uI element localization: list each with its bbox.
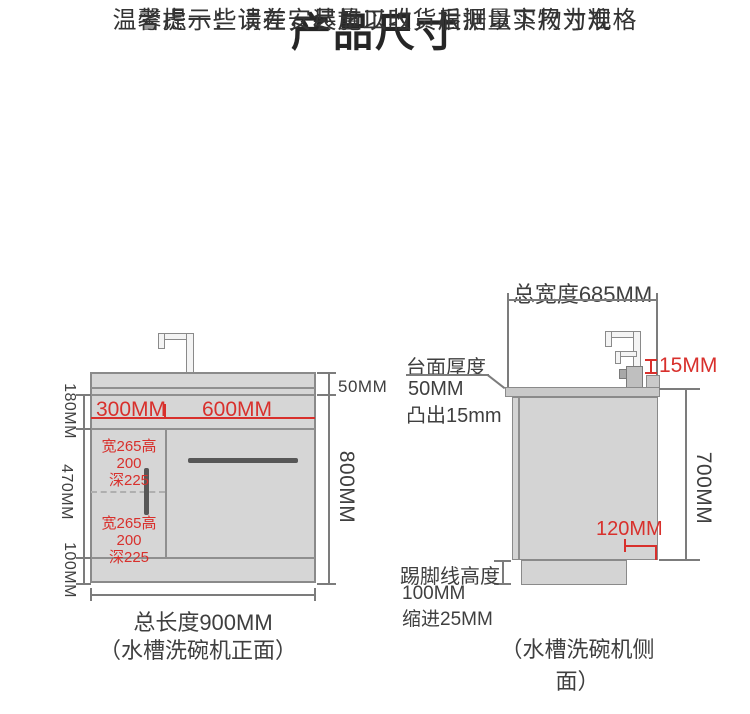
- side-700-ext-bottom: [659, 559, 700, 561]
- front-dim-50mm: 50MM: [338, 377, 387, 397]
- side-faucet-base: [626, 366, 643, 388]
- front-left-tick-1: [76, 394, 91, 396]
- front-dim-800mm: 800MM: [334, 451, 358, 524]
- front-left-tick-3: [76, 557, 91, 559]
- front-dim-470mm: 470MM: [57, 464, 75, 520]
- front-bottom-dim-line: [90, 594, 316, 596]
- side-ext-line-left: [507, 299, 509, 387]
- front-right-tick-3: [317, 583, 336, 585]
- side-toekick-bracket: [502, 560, 504, 584]
- front-faucet-pipe: [186, 333, 194, 374]
- side-faucet-lever: [619, 369, 627, 379]
- front-right-door-handle: [188, 458, 298, 463]
- side-ext-line-right: [656, 299, 658, 375]
- front-right-tick-2: [317, 394, 336, 396]
- side-view-caption: （水槽洗碗机侧面）: [495, 632, 660, 696]
- side-dim-700mm: 700MM: [691, 452, 715, 525]
- front-dim-100mm: 100MM: [60, 542, 78, 598]
- front-dim-180mm: 180MM: [60, 383, 78, 439]
- side-120mm-tick-left: [624, 539, 626, 552]
- side-panel-line: [518, 398, 520, 559]
- front-door-divider: [165, 428, 167, 557]
- side-700-ext-top: [659, 388, 700, 390]
- front-right-dim-line: [328, 372, 330, 583]
- side-120mm-tick-right: [655, 545, 657, 560]
- basin-bottom-line2: 深225: [93, 549, 165, 566]
- front-left-dim-line: [83, 394, 85, 583]
- side-15mm-bracket: [650, 359, 652, 374]
- front-red-dim-line: [91, 417, 315, 419]
- side-leader-diagonal: [487, 374, 505, 389]
- front-right-tick-1: [317, 372, 336, 374]
- side-toekick-note-3: 缩进25MM: [402, 604, 493, 631]
- basin-top-line2: 深225: [93, 472, 165, 489]
- side-faucet-hook-tall: [605, 331, 612, 347]
- front-counter-line: [91, 387, 315, 389]
- front-left-tick-2: [76, 428, 91, 430]
- basin-top-line1: 宽265高200: [93, 438, 165, 472]
- side-total-width: 总宽度685MM: [505, 277, 660, 309]
- side-counter-note-1: 台面厚度: [406, 351, 486, 380]
- subtitle-line-2: 考虑一些误差，尽量以收货后测量实物为准: [0, 0, 750, 35]
- side-countertop: [505, 387, 660, 397]
- basin-bottom-line1: 宽265高200: [93, 515, 165, 549]
- front-faucet-hook: [158, 333, 165, 349]
- front-bottom-tick-left: [90, 588, 92, 601]
- front-basin-bottom-label: 宽265高200 深225: [93, 515, 165, 566]
- side-faucet-hook-short: [615, 351, 621, 364]
- front-sink-rim-line: [91, 394, 315, 396]
- side-toekick: [521, 560, 627, 585]
- side-700-dim-line: [685, 388, 687, 560]
- product-dimensions-page: 产品尺寸 温馨提示：请在安装施工时，根据以下尺寸规格 考虑一些误差，尽量以收货后…: [0, 0, 750, 714]
- side-dim-120mm: 120MM: [596, 518, 658, 541]
- side-counter-note-3: 凸出15mm: [406, 399, 502, 428]
- front-view-caption: （水槽洗碗机正面）: [85, 633, 311, 665]
- front-basin-top-label: 宽265高200 深225: [93, 438, 165, 489]
- front-sink-bottom-line: [91, 428, 315, 430]
- front-red-dim-tick: [164, 404, 166, 418]
- side-dim-15mm: 15MM: [659, 354, 717, 378]
- side-leader-underline: [406, 374, 489, 376]
- side-counter-note-2: 50MM: [408, 378, 464, 401]
- side-top-dim-line: [507, 299, 658, 301]
- side-120mm-line: [625, 545, 657, 547]
- side-toekick-note-2: 100MM: [402, 583, 465, 605]
- front-drawer-dashed-line: [91, 491, 165, 493]
- front-left-tick-4: [76, 583, 91, 585]
- front-bottom-tick-right: [314, 588, 316, 601]
